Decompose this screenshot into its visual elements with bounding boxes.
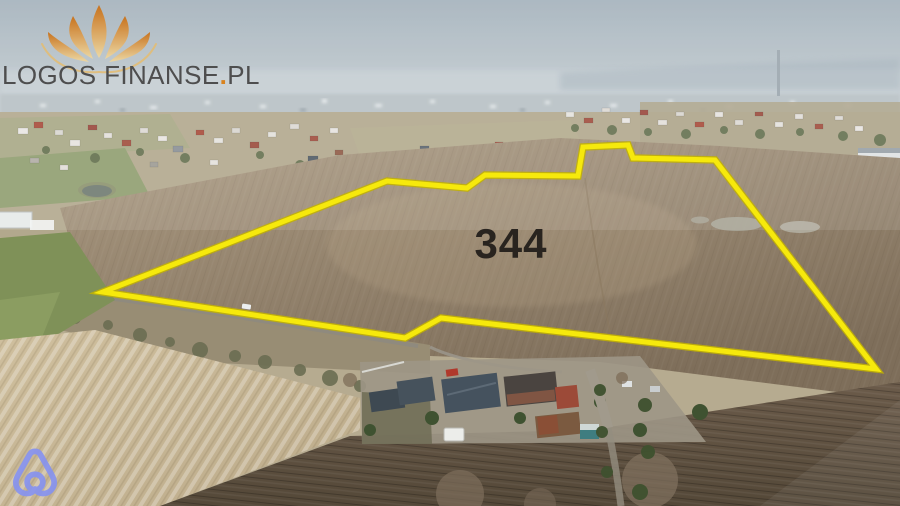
scene-graphic: 344 [0,0,900,506]
belo-house-loop-icon [12,444,58,500]
aerial-photo: 344 LOGOS FINANSE.PL [0,0,900,506]
haze-overlay [0,0,900,230]
bare-tree [622,452,678,506]
parcel-label: 344 [474,220,547,267]
farmstead [343,356,708,444]
caravan [444,428,464,441]
